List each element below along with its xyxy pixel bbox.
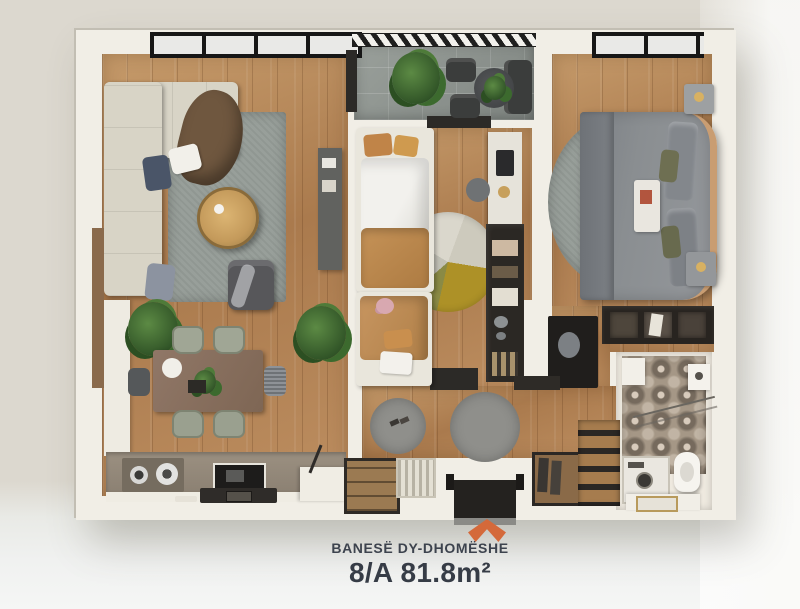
kids-plush-toy bbox=[376, 298, 394, 314]
hallway-bench bbox=[514, 376, 560, 390]
washer-display bbox=[628, 462, 644, 468]
kids-desk-laptop bbox=[496, 150, 514, 176]
bench-decor bbox=[640, 190, 652, 204]
wardrobe-shoes bbox=[492, 352, 518, 376]
cooking-pot bbox=[156, 463, 178, 485]
dining-chair bbox=[172, 326, 204, 354]
kids-bed-2-duvet bbox=[360, 296, 428, 360]
dining-tray bbox=[188, 380, 206, 393]
entry-door-jamb bbox=[516, 474, 524, 490]
entry-door-jamb bbox=[446, 474, 454, 490]
balcony-side-window bbox=[346, 50, 357, 112]
unit-area-label: 8/A 81.8m² bbox=[160, 557, 680, 589]
kids-bed-1-blanket bbox=[361, 228, 429, 288]
wardrobe-glass-panel bbox=[610, 312, 638, 338]
kids-bed-1-pillow bbox=[363, 133, 393, 157]
bed-accent-pillow bbox=[658, 149, 679, 183]
oven-screen bbox=[226, 470, 244, 482]
hanging-clothes bbox=[537, 458, 549, 492]
coffee-table-tray bbox=[214, 204, 224, 214]
cooking-pot bbox=[130, 466, 148, 484]
kids-bed-1-pillow bbox=[393, 134, 420, 157]
kids-room-door bbox=[430, 368, 478, 390]
dining-plate bbox=[162, 358, 182, 378]
kids-pouf bbox=[466, 178, 490, 202]
kids-desk-decor bbox=[498, 186, 510, 198]
dining-chair bbox=[213, 410, 245, 438]
shoe-rack-slats bbox=[396, 458, 436, 498]
coffee-table bbox=[197, 187, 259, 249]
bed-bench-tray bbox=[634, 180, 660, 232]
balcony-chair bbox=[446, 58, 476, 82]
bed-foot-throw bbox=[580, 112, 614, 300]
sofa-gray-throw bbox=[144, 263, 176, 302]
hallway-rug-large bbox=[450, 392, 520, 462]
kids-bed-2-pillow-white bbox=[379, 351, 412, 375]
entry-closet-shelves bbox=[344, 458, 400, 514]
dining-chair bbox=[172, 410, 204, 438]
dining-end-chair-right bbox=[264, 366, 286, 396]
kitchen-peninsula bbox=[300, 467, 346, 501]
nightstand-lamp bbox=[696, 262, 706, 272]
balcony-railing bbox=[352, 34, 536, 46]
washer-dial bbox=[636, 472, 653, 489]
living-room-plant bbox=[296, 306, 346, 360]
wardrobe-shelf-item bbox=[492, 240, 518, 256]
shower-tray bbox=[622, 358, 645, 385]
kitchen-dishes bbox=[175, 496, 197, 502]
balcony-plant bbox=[392, 52, 440, 104]
vanity-sink bbox=[636, 496, 678, 512]
dining-chair bbox=[213, 326, 245, 354]
toilet-bowl bbox=[680, 462, 694, 482]
tv-frame-small bbox=[322, 158, 336, 168]
wardrobe-glass-panel bbox=[678, 312, 706, 338]
left-wall-cabinet bbox=[104, 300, 130, 456]
desk-chair bbox=[558, 332, 580, 358]
apartment-type-label: BANESË DY-DHOMËSHE bbox=[160, 540, 680, 556]
sink-faucet bbox=[695, 372, 703, 380]
hallway-rug-small bbox=[370, 398, 426, 454]
floor-plan[interactable] bbox=[76, 30, 736, 520]
dining-end-chair-left bbox=[128, 368, 150, 396]
bedroom-window bbox=[592, 32, 704, 58]
wardrobe-baskets bbox=[494, 316, 508, 328]
bed-accent-pillow bbox=[660, 225, 681, 259]
living-room-window bbox=[150, 32, 362, 58]
balcony-table-plant bbox=[484, 76, 506, 100]
sofa-navy-pillow bbox=[142, 154, 172, 191]
kids-desk-unit bbox=[488, 132, 522, 224]
dining-plant bbox=[128, 302, 178, 356]
hall-shelf-unit bbox=[578, 420, 620, 506]
wardrobe-shelf-item bbox=[492, 266, 518, 278]
nightstand-lamp bbox=[694, 92, 704, 102]
left-wall-wood-panel bbox=[92, 228, 104, 388]
kids-bed-1-duvet bbox=[361, 158, 429, 234]
tv-frame-small-2 bbox=[322, 180, 336, 192]
entry-door bbox=[454, 480, 516, 518]
wardrobe-shelf-item bbox=[492, 288, 518, 306]
floorplan-viewport: BANESË DY-DHOMËSHE 8/A 81.8m² bbox=[0, 0, 800, 609]
kids-bed-2-pillow bbox=[383, 329, 413, 350]
kitchen-sink-basin bbox=[226, 491, 252, 502]
